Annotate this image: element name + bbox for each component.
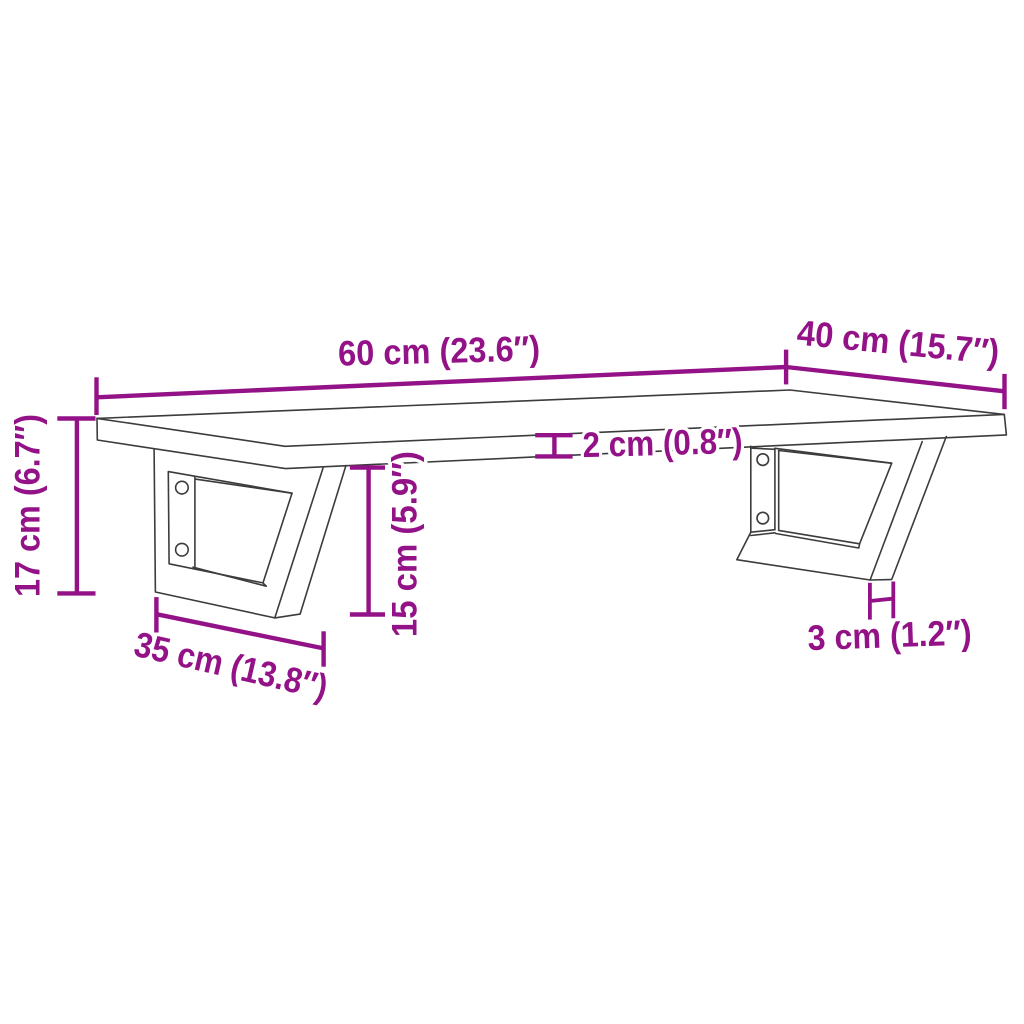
svg-text:2 cm (0.8″): 2 cm (0.8″): [582, 421, 743, 465]
svg-text:60 cm (23.6″): 60 cm (23.6″): [338, 328, 541, 373]
svg-text:3 cm (1.2″): 3 cm (1.2″): [807, 612, 972, 658]
svg-text:15 cm (5.9″): 15 cm (5.9″): [385, 451, 425, 637]
svg-text:17 cm (6.7″): 17 cm (6.7″): [7, 414, 47, 597]
